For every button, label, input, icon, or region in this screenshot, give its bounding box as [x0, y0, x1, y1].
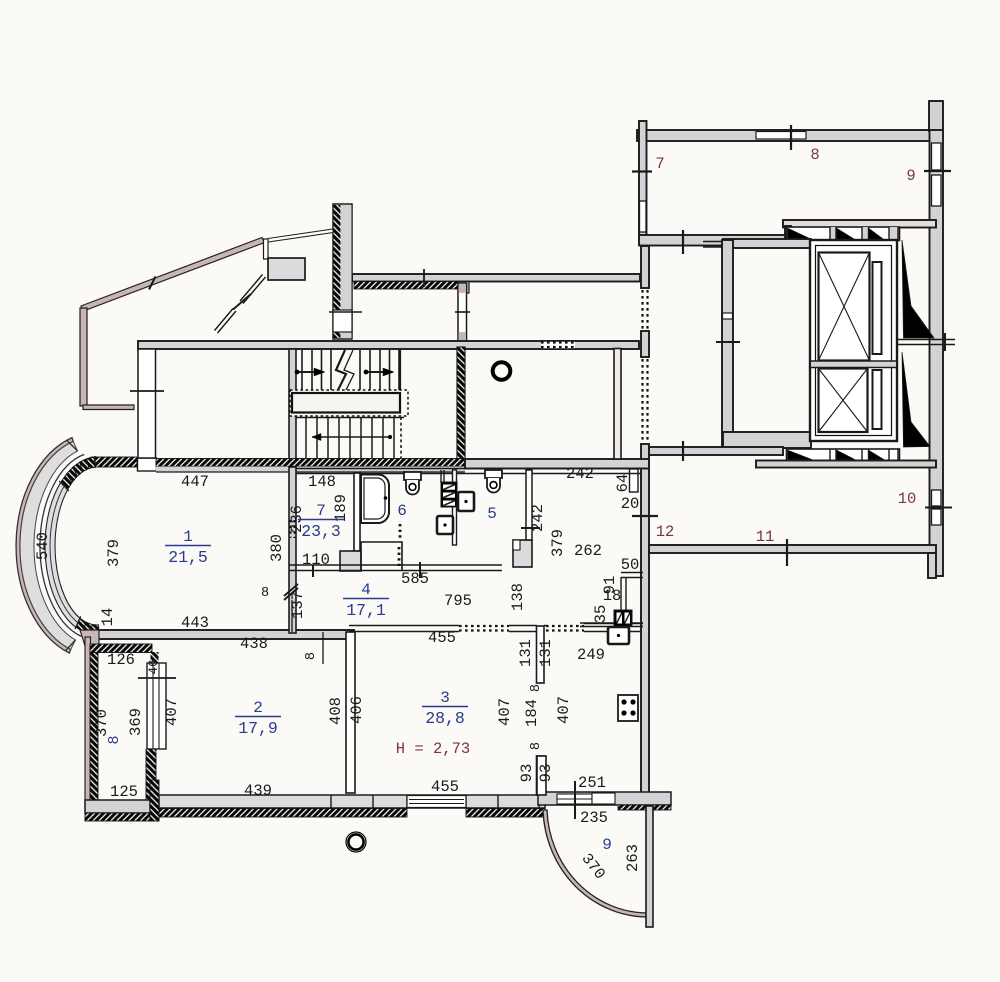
svg-text:263: 263	[624, 844, 642, 872]
svg-text:10: 10	[898, 490, 917, 508]
svg-text:585: 585	[401, 570, 429, 588]
svg-text:93: 93	[537, 764, 555, 783]
svg-text:11: 11	[756, 528, 775, 546]
svg-text:242: 242	[529, 504, 547, 532]
svg-text:407: 407	[496, 698, 514, 726]
svg-text:4: 4	[361, 581, 371, 599]
svg-text:17,1: 17,1	[346, 601, 386, 620]
svg-text:447: 447	[181, 473, 209, 491]
svg-text:131: 131	[537, 639, 555, 667]
svg-text:408: 408	[327, 697, 345, 725]
svg-text:7: 7	[655, 155, 664, 173]
svg-text:12: 12	[656, 523, 675, 541]
svg-text:189: 189	[332, 494, 350, 522]
svg-text:91: 91	[601, 576, 619, 595]
svg-text:148: 148	[308, 473, 336, 491]
svg-text:H = 2,73: H = 2,73	[396, 740, 470, 758]
svg-text:21,5: 21,5	[168, 548, 208, 567]
svg-text:369: 369	[127, 708, 145, 736]
svg-text:131: 131	[517, 639, 535, 667]
svg-text:242: 242	[566, 465, 594, 483]
svg-text:110: 110	[302, 551, 330, 569]
svg-text:262: 262	[574, 542, 602, 560]
svg-text:407: 407	[163, 698, 181, 726]
svg-text:35: 35	[592, 605, 610, 624]
svg-text:9: 9	[906, 167, 915, 185]
svg-text:23,3: 23,3	[301, 522, 341, 541]
svg-text:8: 8	[529, 684, 544, 692]
svg-text:138: 138	[509, 583, 527, 611]
svg-text:379: 379	[549, 529, 567, 557]
svg-text:6: 6	[397, 502, 407, 520]
svg-text:137: 137	[289, 591, 307, 619]
svg-text:9: 9	[602, 836, 612, 854]
svg-text:251: 251	[578, 774, 606, 792]
svg-text:14: 14	[99, 608, 117, 627]
svg-text:455: 455	[428, 629, 456, 647]
svg-text:406: 406	[348, 696, 366, 724]
svg-text:50: 50	[621, 556, 640, 574]
svg-text:5: 5	[487, 505, 497, 523]
svg-text:438: 438	[240, 635, 268, 653]
svg-text:126: 126	[107, 651, 135, 669]
svg-text:8: 8	[261, 586, 269, 601]
svg-text:8: 8	[304, 652, 319, 660]
svg-text:540: 540	[34, 532, 52, 560]
svg-text:64: 64	[614, 474, 632, 493]
svg-text:28,8: 28,8	[425, 709, 465, 728]
svg-text:235: 235	[580, 809, 608, 827]
svg-text:46: 46	[147, 659, 161, 674]
svg-text:8: 8	[810, 146, 819, 164]
svg-text:379: 379	[105, 539, 123, 567]
svg-text:370: 370	[93, 709, 111, 737]
svg-text:184: 184	[523, 699, 541, 727]
svg-text:439: 439	[244, 782, 272, 800]
svg-text:795: 795	[444, 592, 472, 610]
svg-text:8: 8	[106, 735, 123, 744]
svg-text:1: 1	[183, 528, 193, 546]
svg-text:7: 7	[316, 502, 326, 520]
svg-text:407: 407	[555, 696, 573, 724]
svg-text:3: 3	[440, 689, 450, 707]
svg-text:93: 93	[518, 764, 536, 783]
svg-text:125: 125	[110, 783, 138, 801]
svg-text:20: 20	[621, 495, 640, 513]
svg-text:2: 2	[253, 699, 263, 717]
svg-text:8: 8	[529, 742, 544, 750]
svg-text:17,9: 17,9	[238, 719, 278, 738]
svg-text:455: 455	[431, 778, 459, 796]
svg-text:443: 443	[181, 614, 209, 632]
svg-text:249: 249	[577, 646, 605, 664]
svg-text:380: 380	[268, 534, 286, 562]
